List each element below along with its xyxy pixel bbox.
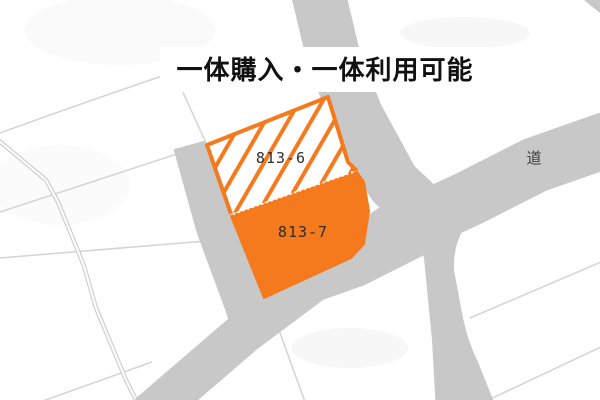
page-title: 一体購入・一体利用可能 (176, 55, 473, 86)
road-corner-topright (584, 0, 600, 13)
map-title-group: 一体購入・一体利用可能 (160, 47, 490, 92)
parcel-label-813-6: 813-6 (256, 149, 306, 167)
road-label: 道 (526, 149, 541, 167)
map-canvas: 813-6 813-7 道 一体購入・一体利用可能 (0, 0, 600, 400)
cadastral-map: 813-6 813-7 道 一体購入・一体利用可能 (0, 0, 600, 400)
parcel-label-813-7: 813-7 (278, 223, 328, 241)
